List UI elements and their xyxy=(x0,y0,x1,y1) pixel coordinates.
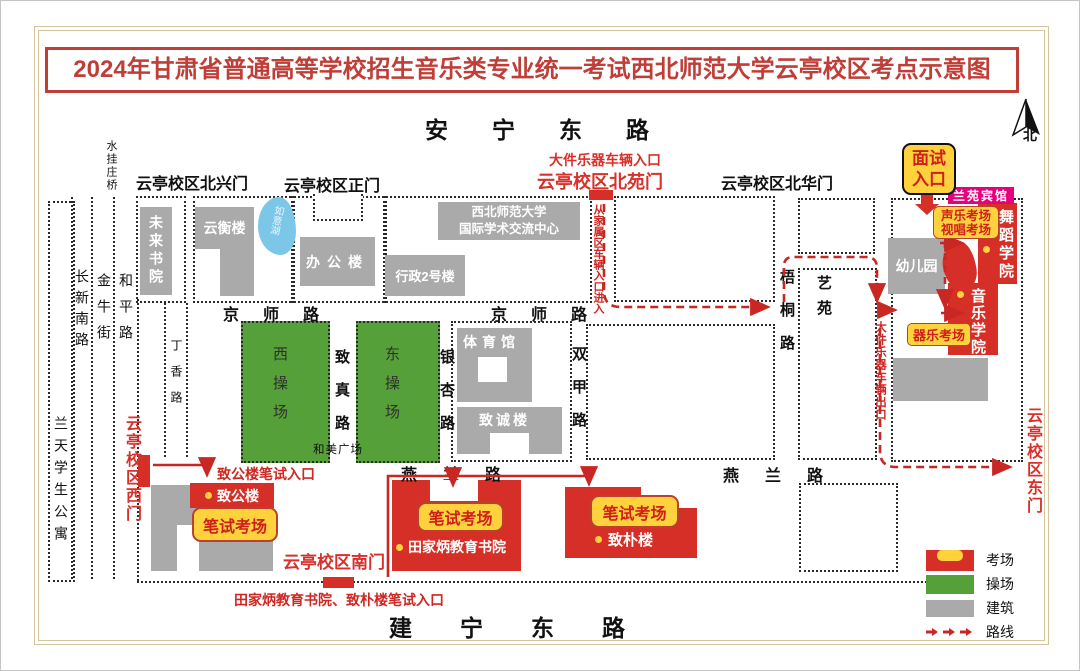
marker-dot xyxy=(595,536,602,543)
marker-dot xyxy=(205,492,212,499)
gate-west-label: 云亭校区西门 xyxy=(119,415,143,523)
gate-beiyuanmen-note: 大件乐器车辆入口 xyxy=(549,150,661,170)
note-south-entry: 田家炳教育书院、致朴楼笔试入口 xyxy=(234,590,444,610)
guoji-line2: 国际学术交流中心 xyxy=(459,221,559,238)
building-east-gray xyxy=(893,358,988,401)
written-exam-badge-tianjiabing: 笔试考场 xyxy=(417,502,504,532)
building-music-college-label: 音乐学院 xyxy=(967,288,988,356)
building-zhigong-label: 致公楼 xyxy=(217,486,259,506)
building-tianjiabing-label: 田家炳教育书院 xyxy=(396,537,506,557)
road-jingshi-west: 京师路 xyxy=(223,301,343,325)
east-field-label: 东操场 xyxy=(381,346,402,433)
campus-south-boundary xyxy=(137,581,931,583)
badge-text: 入口 xyxy=(912,169,946,190)
street-line xyxy=(113,197,115,579)
block-empty-southeast xyxy=(799,483,898,572)
gate-beixingmen-label: 云亭校区北兴门 xyxy=(136,170,248,194)
block-east-of-beiyuan xyxy=(614,196,775,302)
building-xingzheng: 行政2号楼 xyxy=(385,255,465,296)
building-zhigong: 致公楼 xyxy=(190,483,274,508)
legend-row-caochang: 操场 xyxy=(926,572,1014,596)
legend-row-jianzhu: 建筑 xyxy=(926,596,1014,620)
road-changxin-south: 长新南路 xyxy=(72,269,92,353)
badge-text: 面试 xyxy=(912,148,946,169)
building-weilai: 未来书院 xyxy=(140,207,172,295)
instrument-exam-badge: 器乐考场 xyxy=(907,323,971,346)
map-title: 2024年甘肃省普通高等学校招生音乐类专业统一考试西北师范大学云亭校区考点示意图 xyxy=(45,47,1019,93)
yiyuan-label: 艺苑 xyxy=(813,275,834,325)
note-zhigong-entry: 致公楼笔试入口 xyxy=(217,464,315,484)
written-exam-badge-zhigong: 笔试考场 xyxy=(192,507,278,542)
building-bangong: 办公楼 xyxy=(300,237,375,286)
badge-text: 视唱考场 xyxy=(941,223,991,237)
block-empty-mid xyxy=(586,324,775,460)
gate-beihuamen-label: 云亭校区北华门 xyxy=(721,170,833,194)
gate-east-label: 云亭校区东门 xyxy=(1020,407,1044,515)
building-zhicheng-label: 致诚楼 xyxy=(479,410,530,430)
badge-text: 器乐考场 xyxy=(913,325,965,344)
road-dingxiang: 丁香路 xyxy=(168,339,185,417)
legend-swatch-jianzhu xyxy=(926,600,974,617)
marker-dot xyxy=(396,544,403,551)
north-label: 北 xyxy=(1023,125,1037,145)
building-gym-wing xyxy=(507,359,532,401)
badge-text: 笔试考场 xyxy=(602,500,666,524)
zhengmen-notch xyxy=(313,194,363,221)
building-yunheng: 云衡楼 xyxy=(195,207,254,249)
bridge-shuiguazhuang: 水挂庄桥 xyxy=(103,140,119,192)
gate-zhengmen-label: 云亭校区正门 xyxy=(284,172,380,196)
west-field-label: 西操场 xyxy=(269,346,290,433)
guoji-line1: 西北师范大学 xyxy=(471,204,546,221)
legend-swatch-kaochang xyxy=(926,550,974,571)
road-zhizhen: 致真路 xyxy=(331,349,352,448)
label-text: 田家炳教育书院 xyxy=(408,537,506,557)
legend-label-kaochang: 考场 xyxy=(986,550,1014,570)
road-yinxing: 银杏路 xyxy=(436,349,457,448)
gate-south-label: 云亭校区南门 xyxy=(283,548,385,573)
vocal-exam-badge: 声乐考场 视唱考场 xyxy=(933,206,999,239)
gate-south-marker xyxy=(323,577,354,588)
road-shuangjia: 双甲路 xyxy=(568,346,589,445)
legend-swatch-kaochang-tab xyxy=(937,550,963,561)
lanyuan-hotel: 兰苑宾馆 xyxy=(948,187,1014,204)
hemei-square-label: 和美广场 xyxy=(313,441,363,457)
building-yunheng-wing xyxy=(220,249,254,296)
building-guoji-center: 西北师范大学 国际学术交流中心 xyxy=(438,202,580,240)
note-family-entrance: 从家属区车辆入口进入 xyxy=(590,204,606,304)
marker-dot xyxy=(983,246,990,253)
dingxiang-lane xyxy=(186,303,188,457)
building-kindergarten: 幼儿园 xyxy=(888,238,945,294)
campus-map: 2024年甘肃省普通高等学校招生音乐类专业统一考试西北师范大学云亭校区考点示意图… xyxy=(0,0,1080,671)
building-gym-label: 体育馆 xyxy=(463,332,520,352)
block-yiyuan xyxy=(798,268,877,460)
gate-beiyuanmen-label: 云亭校区北苑门 xyxy=(537,168,663,194)
road-yanlan-east: 燕兰路 xyxy=(723,462,849,486)
road-wutong: 梧桐路 xyxy=(776,269,797,368)
badge-text: 声乐考场 xyxy=(941,209,991,223)
gym-courtyard xyxy=(478,357,507,382)
road-jinniu-street: 金牛街 xyxy=(94,273,114,351)
legend-label-jianzhu: 建筑 xyxy=(986,598,1014,618)
badge-text: 笔试考场 xyxy=(428,505,492,529)
zhicheng-notch xyxy=(490,433,529,454)
note-instrument-exit: 大件乐器车辆出口 xyxy=(872,321,888,421)
label-text: 致朴楼 xyxy=(608,529,653,550)
street-line xyxy=(91,197,93,579)
legend: 考场 操场 建筑 路线 xyxy=(926,548,1014,644)
road-jianning-east: 建宁东路 xyxy=(389,609,673,643)
badge-text: 笔试考场 xyxy=(203,513,267,537)
legend-row-luxian: 路线 xyxy=(926,620,1014,644)
legend-row-kaochang: 考场 xyxy=(926,548,1014,572)
legend-label-luxian: 路线 xyxy=(986,622,1014,642)
building-zhipu-label: 致朴楼 xyxy=(595,529,653,550)
legend-swatch-caochang xyxy=(926,575,974,594)
written-exam-badge-zhipu: 笔试考场 xyxy=(590,495,679,528)
interview-entrance-badge: 面试 入口 xyxy=(902,143,956,195)
legend-swatch-luxian xyxy=(926,627,974,637)
hotel-label: 兰苑宾馆 xyxy=(953,187,1009,204)
lantian-dorm-label: 兰天学生公寓 xyxy=(51,416,71,548)
block-north-small xyxy=(798,198,875,254)
road-anning-east: 安宁东路 xyxy=(425,111,693,145)
marker-dot xyxy=(957,291,964,298)
legend-label-caochang: 操场 xyxy=(986,574,1014,594)
street-line xyxy=(71,197,73,579)
tianjiabing-notch xyxy=(430,480,478,501)
dingxiang-lane xyxy=(164,303,166,457)
road-heping: 和平路 xyxy=(116,273,136,351)
